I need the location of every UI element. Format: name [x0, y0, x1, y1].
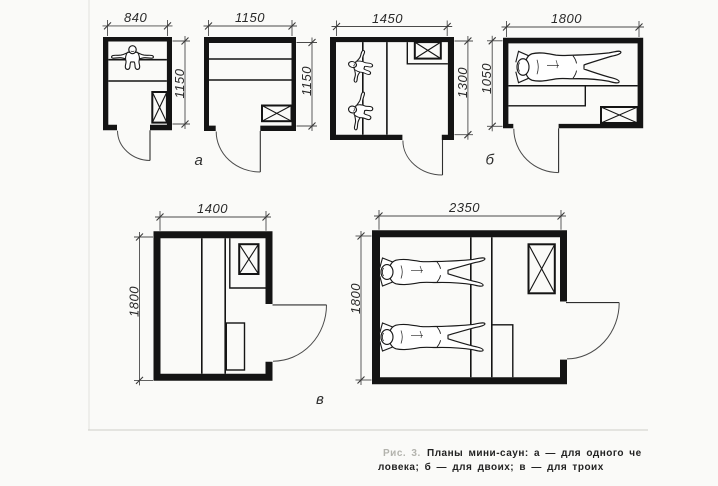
svg-text:1800: 1800 — [348, 283, 363, 314]
svg-text:1300: 1300 — [455, 67, 470, 98]
svg-text:840: 840 — [124, 10, 147, 25]
svg-text:1150: 1150 — [235, 10, 265, 25]
svg-text:1150: 1150 — [299, 66, 314, 96]
svg-text:в: в — [316, 391, 324, 408]
svg-text:б: б — [486, 152, 495, 169]
svg-text:2350: 2350 — [448, 200, 480, 215]
svg-text:а: а — [195, 152, 203, 169]
svg-text:1400: 1400 — [197, 201, 228, 216]
svg-text:ловека; б — для двоих; в —: ловека; б — для двоих; в — для троих — [378, 461, 604, 473]
svg-text:1800: 1800 — [551, 11, 582, 26]
svg-text:1050: 1050 — [479, 63, 494, 94]
svg-text:1150: 1150 — [172, 68, 187, 98]
svg-text:1450: 1450 — [372, 11, 403, 26]
svg-text:1800: 1800 — [127, 286, 142, 317]
